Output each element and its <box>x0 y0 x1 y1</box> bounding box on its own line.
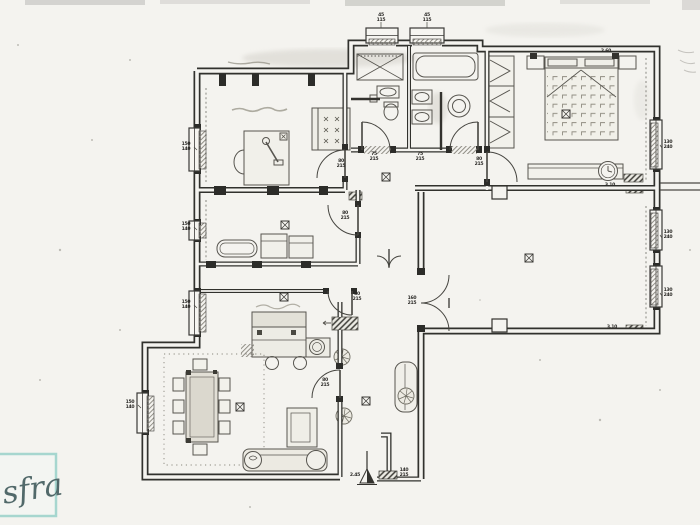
window-bedroom-east <box>650 120 662 169</box>
cabinet-1 <box>261 234 287 258</box>
cabinet-2 <box>289 236 313 258</box>
dim-label: 45115 <box>377 12 386 23</box>
dim-label: 2.60 <box>601 48 611 54</box>
floor-plan-drawing: 1501401501401501401501404511545115802158… <box>0 0 700 525</box>
dim-label: 150140 <box>182 141 191 152</box>
study <box>206 62 350 185</box>
watermark: sfra <box>0 454 65 516</box>
armchair-dining <box>287 408 317 447</box>
niche-top <box>492 186 507 199</box>
window-living-east-1 <box>650 210 662 250</box>
dim-label: 3.10 <box>607 324 617 330</box>
master-bedroom <box>487 53 646 182</box>
double-door-living <box>421 275 449 331</box>
dim-label: 150140 <box>126 399 135 410</box>
dim-label: 75215 <box>416 151 425 162</box>
dining-table <box>186 370 218 443</box>
door-bath1 <box>362 122 390 150</box>
window-corridor-west <box>189 291 206 335</box>
wall-details <box>364 146 507 479</box>
bathtub <box>413 53 478 80</box>
dim-label: 130240 <box>664 229 673 240</box>
arrow-mark <box>323 321 331 325</box>
entry-table-symbol <box>362 397 370 405</box>
double-door-hall <box>377 249 401 268</box>
niche-bottom <box>492 319 507 332</box>
toilet-1 <box>384 104 398 120</box>
entry <box>334 349 417 424</box>
dim-label: 80215 <box>337 158 346 169</box>
stool-2 <box>294 357 307 370</box>
nightstand-right <box>619 56 636 69</box>
stool-1 <box>266 357 279 370</box>
window-dining-west <box>137 393 154 433</box>
ceiling-light-corridor <box>280 293 288 301</box>
dim-label: 2.45 <box>350 472 360 478</box>
sill-bath2 <box>451 146 477 154</box>
console-cabinet <box>395 362 417 412</box>
window-bedroom2-west <box>189 221 206 240</box>
double-bed <box>527 53 636 140</box>
window-bath2-north <box>410 28 444 45</box>
wardrobe <box>487 56 514 148</box>
dim-label: 150140 <box>182 299 191 310</box>
plant-entry <box>398 388 414 404</box>
sill-bath1 <box>364 146 391 154</box>
dim-label: 45115 <box>423 12 432 23</box>
window-bath1-north <box>366 28 398 45</box>
dim-label: 80215 <box>321 377 330 388</box>
door-bath2 <box>450 122 478 150</box>
dim-label: 80215 <box>341 210 350 221</box>
counter <box>252 312 306 327</box>
dim-label: 150140 <box>182 221 191 232</box>
radiator-bedroom <box>624 174 643 182</box>
living-room <box>424 187 646 331</box>
bedroom-2 <box>206 200 313 260</box>
window-living-east-2 <box>650 266 662 307</box>
ceiling-light-living <box>525 254 533 262</box>
dim-label: 130240 <box>664 139 673 150</box>
entry-threshold <box>379 471 397 479</box>
dim-label: 80215 <box>475 156 484 167</box>
daybed <box>217 240 257 257</box>
desk <box>244 131 289 185</box>
desk-chair <box>234 150 244 174</box>
ceiling-light-dining <box>236 403 244 411</box>
masonry-block <box>332 317 358 330</box>
ceiling-light-hall <box>382 173 390 181</box>
dining-living <box>164 354 327 471</box>
window-study-west <box>189 128 206 171</box>
sink-2 <box>448 95 470 117</box>
dim-label: 3.10 <box>605 182 615 188</box>
dim-label: 130240 <box>664 287 673 298</box>
benchmark-mark <box>357 451 377 485</box>
sofa <box>243 449 327 471</box>
ceiling-light-bedroom2 <box>281 221 289 229</box>
door-master-bedroom <box>487 152 517 182</box>
dim-label: 140215 <box>400 467 409 478</box>
scanned-floor-plan-page: 1501401501401501401501404511545115802158… <box>0 0 700 525</box>
dim-label: 80215 <box>353 291 362 302</box>
clock <box>599 162 618 181</box>
dim-label: 160215 <box>408 295 417 306</box>
ceiling-light-bedroom <box>562 110 570 118</box>
